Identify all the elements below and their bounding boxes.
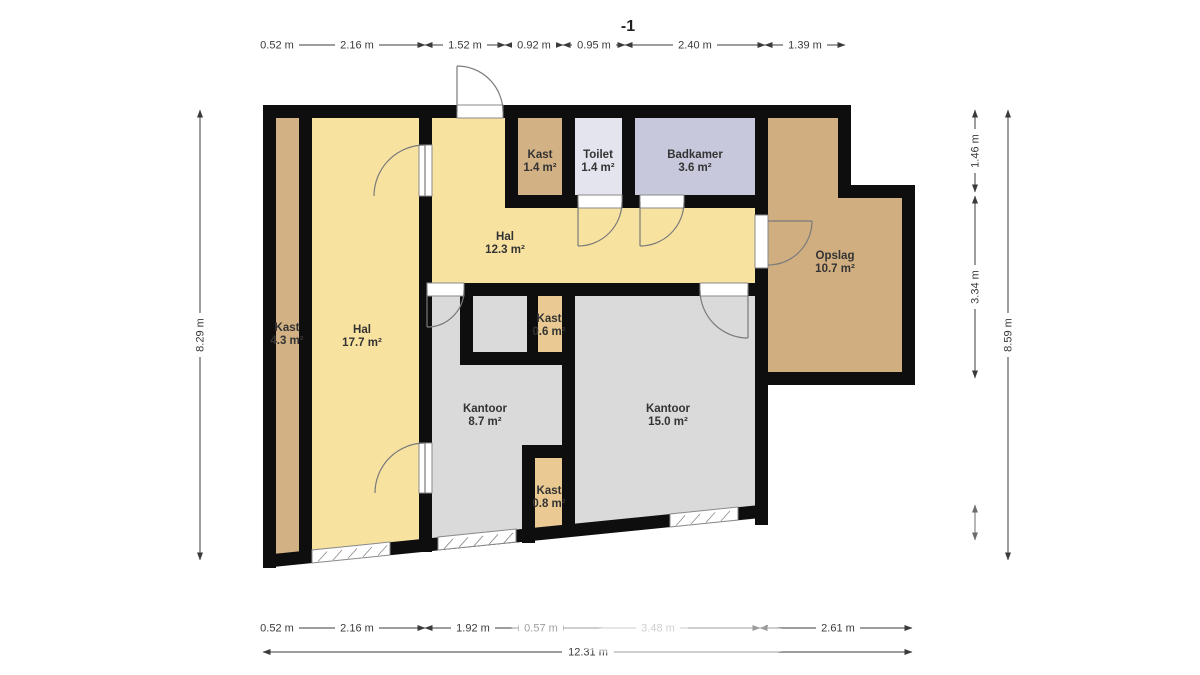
wall-segment xyxy=(505,118,518,195)
wall-segment xyxy=(503,105,768,118)
shaft-alcove xyxy=(473,296,527,352)
wall-segment xyxy=(902,185,915,385)
wall-segment xyxy=(755,118,768,215)
wall-segment xyxy=(419,283,427,296)
wall-segment xyxy=(755,268,768,525)
dim-right-0: 1.46 m xyxy=(970,134,982,168)
wall-segment xyxy=(419,118,432,145)
dim-left-total-label: 8.29 m xyxy=(195,318,207,352)
dim-right-inner-column: 1.46 m 3.34 m xyxy=(968,110,982,540)
dim-right-total-label: 8.59 m xyxy=(1003,318,1015,352)
dim-bottom-2: 1.92 m xyxy=(456,623,490,635)
dim-right-1: 3.34 m xyxy=(970,270,982,304)
wall-segment xyxy=(838,105,851,198)
watermark-wash xyxy=(505,606,810,658)
wall-segment xyxy=(460,352,575,365)
room-label-kantoor-15-0: Kantoor15.0 m² xyxy=(646,403,691,428)
room-label-kast-0-6: Kast0.6 m² xyxy=(532,313,565,338)
dim-top-row: 0.52 m 2.16 m 1.52 m 0.92 m 0.95 m 2.40 … xyxy=(255,38,845,52)
room-label-kantoor-8-7: Kantoor8.7 m² xyxy=(463,403,508,428)
room-label-kast-1-4: Kast1.4 m² xyxy=(523,149,556,174)
dim-left-column: 8.29 m xyxy=(193,110,207,560)
dim-top-5: 2.40 m xyxy=(678,40,712,52)
wall-segment xyxy=(755,372,915,385)
dim-top-4: 0.95 m xyxy=(577,40,611,52)
room-label-kast-0-8: Kast0.8 m² xyxy=(532,485,565,510)
dim-bottom-1: 2.16 m xyxy=(340,623,374,635)
dim-top-1: 2.16 m xyxy=(340,40,374,52)
room-label-opslag: Opslag10.7 m² xyxy=(815,250,855,275)
wall-segment xyxy=(562,458,575,534)
dim-bottom-5: 2.61 m xyxy=(821,623,855,635)
room-label-toilet: Toilet1.4 m² xyxy=(581,149,614,174)
room-label-kast-4-3: Kast4.3 m² xyxy=(270,322,303,347)
floorplan-page: Kast4.3 m² Hal17.7 m² Hal12.3 m² Kast1.4… xyxy=(0,0,1200,675)
wall-segment xyxy=(419,196,432,443)
page-title: -1 xyxy=(621,18,635,35)
wall-segment xyxy=(263,105,457,118)
wall-segment xyxy=(622,195,640,208)
wall-segment xyxy=(464,283,700,296)
dim-bottom-0: 0.52 m xyxy=(260,623,294,635)
floor-plan-svg: Kast4.3 m² Hal17.7 m² Hal12.3 m² Kast1.4… xyxy=(0,0,1200,675)
wall-segment xyxy=(622,118,635,195)
dim-top-2: 1.52 m xyxy=(448,40,482,52)
wall-segment xyxy=(562,118,575,195)
dim-top-0: 0.52 m xyxy=(260,40,294,52)
dim-top-6: 1.39 m xyxy=(788,40,822,52)
room-kast-0-8 xyxy=(535,458,562,536)
dim-top-3: 0.92 m xyxy=(517,40,551,52)
entrance-door xyxy=(457,66,503,118)
room-opslag xyxy=(768,118,902,372)
dim-right-outer-column: 8.59 m xyxy=(1001,110,1015,560)
wall-segment xyxy=(505,195,578,208)
wall-segment xyxy=(562,283,575,458)
